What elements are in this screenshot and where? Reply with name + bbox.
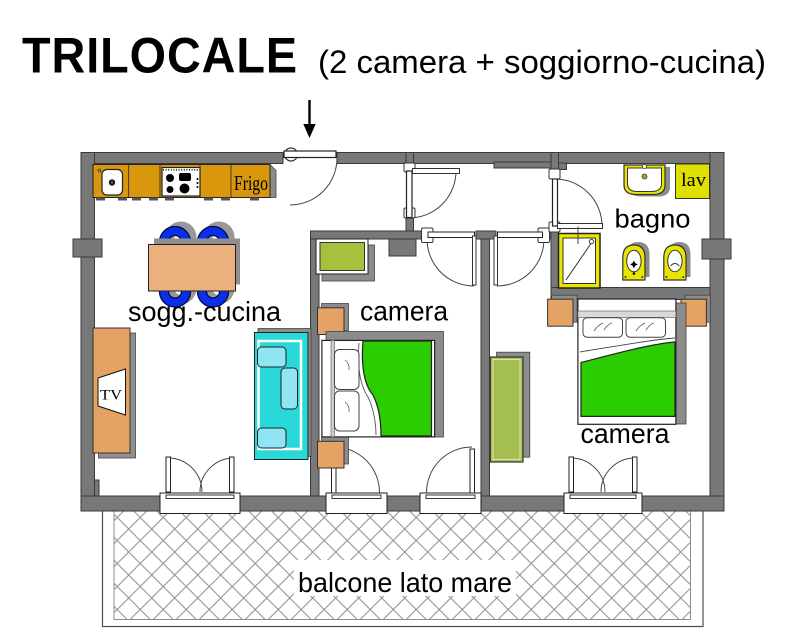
svg-text:camera: camera [360, 296, 448, 327]
svg-text:camera: camera [581, 418, 670, 449]
svg-text:TV: TV [100, 388, 122, 404]
svg-text:(2 camera + soggiorno-cucina): (2 camera + soggiorno-cucina) [318, 44, 766, 80]
svg-text:lav: lav [681, 170, 707, 191]
svg-text:TRILOCALE: TRILOCALE [22, 28, 298, 84]
svg-text:balcone lato mare: balcone lato mare [298, 567, 512, 598]
svg-text:bagno: bagno [615, 204, 691, 234]
svg-text:Frigo: Frigo [234, 171, 268, 195]
svg-text:sogg.-cucina: sogg.-cucina [128, 296, 281, 327]
